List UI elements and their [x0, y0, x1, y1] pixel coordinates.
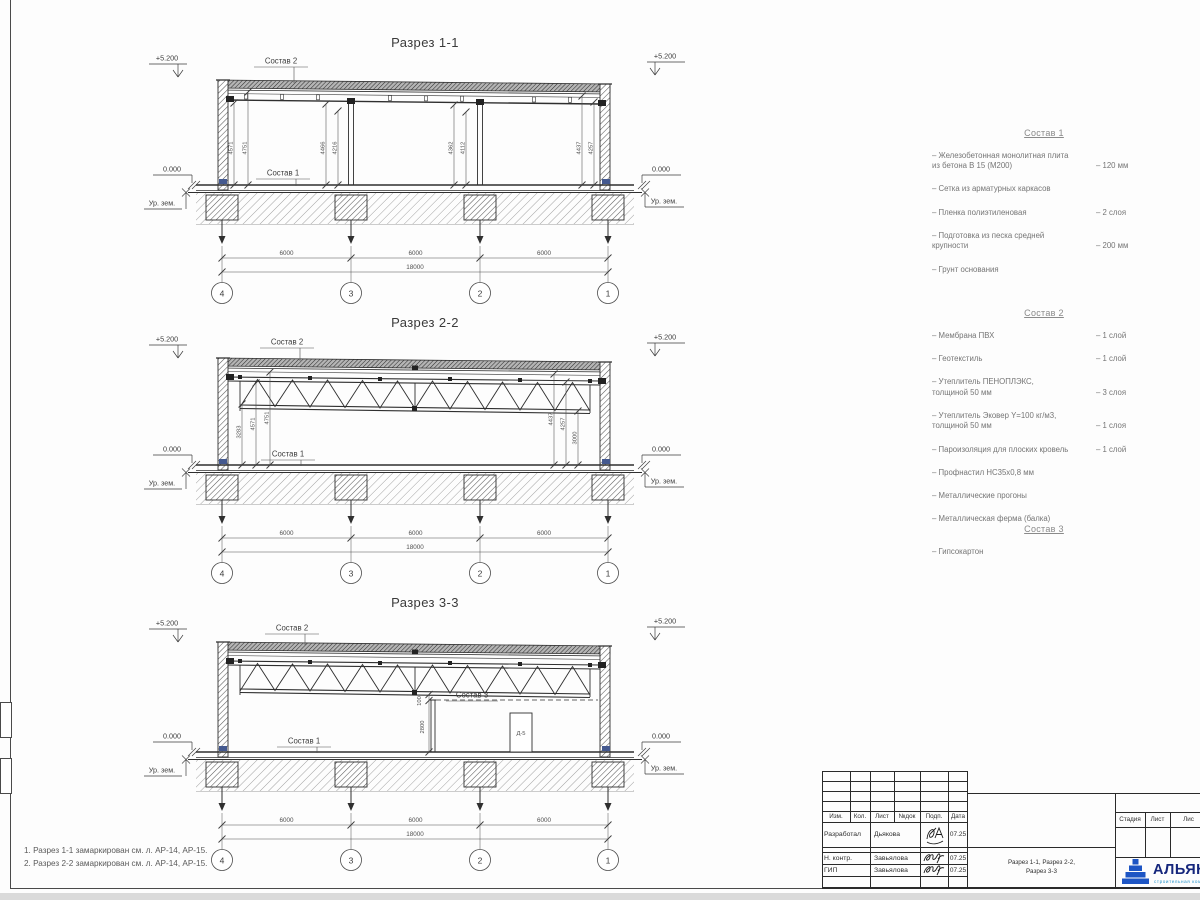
column — [478, 105, 483, 186]
height-dim: 4751 — [243, 142, 249, 155]
table-line — [822, 887, 1200, 889]
wall-right — [600, 84, 610, 190]
layer-label: Состав 2 — [271, 338, 303, 347]
section-title: Разрез 2-2 — [391, 315, 459, 330]
list-item: – Мембрана ПВХ – 1 слой — [932, 331, 1156, 341]
date-cell: 07.25 — [948, 864, 968, 876]
list-item: – Сетка из арматурных каркасов — [932, 184, 1156, 194]
col-header: Дата — [948, 812, 968, 821]
layer-label: Состав 1 — [288, 737, 320, 746]
table-line — [822, 781, 968, 782]
layer-label: Состав 1 — [272, 450, 304, 459]
table-line — [1115, 857, 1200, 858]
list-item: – Пароизоляция для плоских кровель – 1 с… — [932, 445, 1156, 455]
sheet-notes: 1. Разрез 1-1 замаркирован см. л. АР-14,… — [24, 845, 207, 870]
table-line — [1115, 827, 1200, 828]
list-item: – Профнастил НС35х0,8 мм — [932, 468, 1156, 478]
col-header: Лист — [870, 812, 894, 821]
table-line — [822, 801, 968, 802]
col-header: Изм. — [822, 812, 850, 821]
layer-name: – Железобетонная монолитная плита из бет… — [932, 151, 1090, 172]
layer-value: – 2 слоя — [1096, 208, 1148, 218]
layer-name: – Грунт основания — [932, 265, 1090, 275]
date-cell: 07.25 — [948, 852, 968, 864]
layer-name: – Сетка из арматурных каркасов — [932, 184, 1090, 194]
height-dim: 4362 — [449, 142, 455, 155]
table-line — [920, 771, 921, 888]
table-line — [1115, 793, 1116, 888]
list-item: – Пленка полиэтиленовая – 2 слоя — [932, 208, 1156, 218]
layer-name: – Геотекстиль — [932, 354, 1090, 364]
layer-value: – 3 слоя — [1096, 388, 1148, 398]
layer-value: – 1 слой — [1096, 354, 1148, 364]
section-3: Разрез 3-3 Д-5 100 2800 Состав 2 Состав … — [144, 595, 685, 871]
layer-name: – Подготовка из песка средней крупности — [932, 231, 1090, 252]
height-dim: 4571 — [251, 418, 257, 431]
partition-dim: 2800 — [420, 721, 426, 734]
document-title: Разрез 1-1, Разрез 2-2, Разрез 3-3 — [968, 847, 1115, 887]
height-dim: 4466 — [321, 142, 327, 155]
table-line — [822, 791, 968, 792]
name-cell: Завьялова — [872, 852, 920, 864]
stage-header: Лист — [1145, 812, 1170, 827]
layer-name: – Пароизоляция для плоских кровель — [932, 445, 1090, 455]
list-item: – Грунт основания — [932, 265, 1156, 275]
table-line — [822, 847, 968, 848]
layer-name: – Профнастил НС35х0,8 мм — [932, 468, 1090, 478]
list-item: – Металлические прогоны — [932, 491, 1156, 501]
column — [349, 104, 354, 185]
role-cell: Разработал — [822, 822, 872, 847]
layer-label: Состав 2 — [276, 624, 308, 633]
roof-beam — [228, 100, 600, 104]
list-item: – Утеплитель Эковер Y=100 кг/м3, толщино… — [932, 411, 1156, 432]
composition-title: Состав 3 — [932, 524, 1156, 536]
section-1: Разрез 1-1 Состав 2 Состав 1 — [144, 35, 685, 304]
height-dim: 4257 — [561, 418, 567, 431]
column-head — [476, 99, 484, 105]
note-line: 1. Разрез 1-1 замаркирован см. л. АР-14,… — [24, 845, 207, 858]
beam-seat — [598, 100, 606, 106]
col-header: №док — [894, 812, 920, 821]
truss-seat — [598, 378, 606, 384]
list-item: – Геотекстиль – 1 слой — [932, 354, 1156, 364]
height-dim: 3283 — [237, 426, 243, 439]
truss-seat — [598, 662, 606, 668]
layer-value: – 1 слоя — [1096, 421, 1148, 431]
stage-header: Лис — [1170, 812, 1200, 827]
layer-name: – Гипсокартон — [932, 547, 1090, 557]
section-title: Разрез 3-3 — [391, 595, 459, 610]
sheet-edge — [0, 893, 1200, 900]
layer-name: – Металлические прогоны — [932, 491, 1090, 501]
section-2: Разрез 2-2 Состав 2 Состав 1 3283 4571 4… — [144, 315, 685, 584]
height-dim: 4571 — [229, 142, 235, 155]
name-cell: Дьякова — [872, 822, 920, 847]
composition-title: Состав 1 — [932, 128, 1156, 140]
layer-value: – 1 слой — [1096, 331, 1148, 341]
sheet-left-border — [10, 0, 11, 888]
signature — [922, 863, 948, 877]
deck-line — [218, 94, 610, 98]
height-dim: 4437 — [577, 142, 583, 155]
composition-title: Состав 2 — [932, 308, 1156, 320]
name-cell: Завьялова — [872, 864, 920, 876]
role-cell: Н. контр. — [822, 852, 872, 864]
role-cell: ГИП — [822, 864, 872, 876]
company-logo-text: АЛЬЯНС — [1153, 862, 1200, 878]
height-dim: 4751 — [265, 412, 271, 425]
height-dim: 4216 — [333, 142, 339, 155]
partition-dim: 100 — [417, 696, 423, 706]
composition-list-2: Состав 2 – Мембрана ПВХ – 1 слой – Геоте… — [932, 308, 1156, 538]
date-cell: 07.25 — [948, 828, 968, 840]
signature — [922, 823, 948, 846]
binding-mark — [0, 758, 12, 794]
beam-seat — [226, 96, 234, 102]
truss-seat — [226, 374, 234, 380]
composition-list-3: Состав 3 – Гипсокартон — [932, 524, 1156, 570]
stage-header: Стадия — [1115, 812, 1145, 827]
drawing-sheet: { "common": { "elev_top": "+5.200", "ele… — [0, 0, 1200, 900]
list-item: – Гипсокартон — [932, 547, 1156, 557]
binding-mark — [0, 702, 12, 738]
company-logo-icon — [1122, 859, 1149, 886]
layer-name: – Мембрана ПВХ — [932, 331, 1090, 341]
layer-value: – 200 мм — [1096, 241, 1148, 251]
layer-value: – 120 мм — [1096, 161, 1148, 171]
note-line: 2. Разрез 2-2 замаркирован см. л. АР-14,… — [24, 858, 207, 871]
layer-label: Состав 1 — [267, 169, 299, 178]
partition-wall — [430, 700, 436, 752]
column-head — [347, 98, 355, 104]
height-dim: 4437 — [549, 413, 555, 426]
height-dim: 4257 — [589, 142, 595, 155]
layer-name: – Утеплитель ПЕНОПЛЭКС, толщиной 50 мм — [932, 377, 1090, 398]
title-block: Изм. Кол. Лист №док Подп. Дата Разработа… — [822, 765, 1200, 889]
col-header: Подп. — [920, 812, 948, 821]
layer-name: – Пленка полиэтиленовая — [932, 208, 1090, 218]
layer-label: Состав 3 — [456, 691, 488, 700]
height-dim: 3000 — [573, 432, 579, 445]
layer-label: Состав 2 — [265, 57, 297, 66]
list-item: – Подготовка из песка средней крупности … — [932, 231, 1156, 252]
company-logo-subtext: строительная компания — [1154, 879, 1200, 884]
door-label: Д-5 — [516, 731, 525, 737]
layer-name: – Утеплитель Эковер Y=100 кг/м3, толщино… — [932, 411, 1090, 432]
list-item: – Утеплитель ПЕНОПЛЭКС, толщиной 50 мм –… — [932, 377, 1156, 398]
col-header: Кол. — [850, 812, 870, 821]
height-dim: 4112 — [461, 142, 467, 154]
layer-value: – 1 слой — [1096, 445, 1148, 455]
truss-seat — [226, 658, 234, 664]
list-item: – Железобетонная монолитная плита из бет… — [932, 151, 1156, 172]
composition-list-1: Состав 1 – Железобетонная монолитная пли… — [932, 128, 1156, 288]
section-title: Разрез 1-1 — [391, 35, 459, 50]
table-line — [968, 793, 1200, 794]
